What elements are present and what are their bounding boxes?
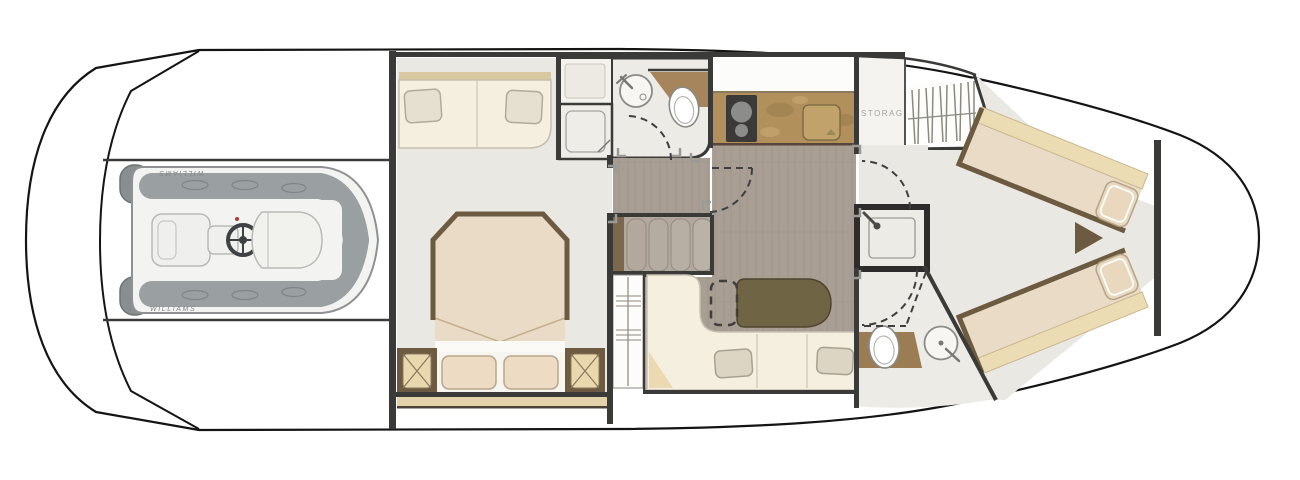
- lobby-floor-grain: [613, 158, 710, 215]
- sofa-pillow: [505, 90, 543, 124]
- galley-counter-edge: [712, 91, 856, 93]
- williams-tender: WILLIAMS WILLIAMS: [120, 165, 378, 315]
- sofa-pillow: [404, 89, 442, 123]
- sofa-back-band: [399, 72, 551, 80]
- storage-label: STORAGE: [861, 109, 910, 118]
- companionway-stairs: [613, 217, 712, 273]
- fwd-sink: [925, 327, 960, 362]
- yacht-deck-plan: WILLIAMS WILLIAMS: [0, 0, 1300, 480]
- galley-left-wall: [708, 56, 713, 148]
- tender-red-detail: [235, 217, 239, 221]
- tender-garage: WILLIAMS WILLIAMS: [103, 160, 391, 320]
- bath-left-wall: [556, 56, 561, 160]
- stairs-top-wall: [607, 213, 714, 217]
- bath-cabinet-top: [565, 64, 605, 98]
- dinette-bottom-wall: [643, 390, 860, 394]
- stairs-right-wall: [710, 215, 714, 275]
- dinette-pillow: [714, 349, 753, 379]
- mid-bed-pillow: [442, 356, 496, 389]
- floor-plan-canvas: WILLIAMS WILLIAMS: [0, 0, 1300, 480]
- stair-tread: [649, 219, 668, 271]
- cabin-right-wall-b: [607, 214, 613, 424]
- mid-bed-mattress: [435, 216, 565, 341]
- mid-bed-pillow: [504, 356, 558, 389]
- forward-bulkhead: [1154, 140, 1161, 336]
- top-wall: [391, 52, 905, 57]
- salon-right-wall-a: [854, 56, 859, 154]
- mid-bathroom: [559, 58, 712, 159]
- tender-seat: [252, 212, 322, 268]
- fwd-shower: [857, 207, 927, 269]
- galley: [712, 56, 856, 146]
- nightstand-left: [397, 348, 437, 394]
- nightstand-right: [565, 348, 605, 394]
- burner-small: [735, 124, 748, 137]
- burner-large: [731, 102, 752, 123]
- galley-upper: [712, 56, 856, 93]
- stair-tread: [671, 219, 690, 271]
- tender-brand-text: WILLIAMS: [150, 306, 196, 313]
- salon-table: [737, 279, 831, 327]
- garage-bulkhead: [389, 51, 396, 429]
- fwd-entry-floor: [859, 145, 928, 207]
- mid-cabin-bottom-wall: [391, 392, 612, 397]
- mid-bed-sheet: [435, 341, 565, 352]
- tender-brand-text-mirrored: WILLIAMS: [158, 169, 204, 176]
- stair-tread: [693, 219, 712, 271]
- counter-front-edge: [712, 143, 856, 146]
- mid-shower: [559, 104, 612, 159]
- mid-cabin-shelf: [397, 397, 608, 406]
- stair-tread: [627, 219, 646, 271]
- shelf-edge: [397, 406, 608, 409]
- salon-right-wall-b: [854, 268, 859, 408]
- dinette-pillow: [816, 347, 853, 375]
- storage-room-floor: [857, 58, 905, 150]
- wardrobe: [613, 273, 647, 390]
- showerhead-icon-head: [874, 223, 881, 230]
